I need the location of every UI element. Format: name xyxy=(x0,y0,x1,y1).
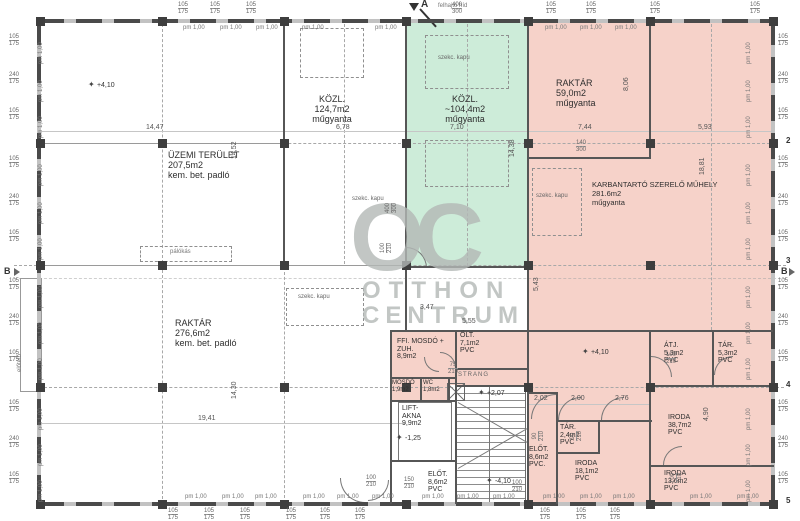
elevation-label: ✦ +4,10 xyxy=(88,80,115,89)
stair-divider xyxy=(489,386,490,504)
pm-label: pm 1,00 xyxy=(580,494,602,500)
elevation-label: ✦ +4,10 xyxy=(582,347,609,356)
pm-label: pm 1,00 xyxy=(422,494,444,500)
column-marker xyxy=(280,383,289,392)
room-floor: PVC xyxy=(460,347,500,355)
window-dim-pair: 105175 xyxy=(9,472,19,485)
room-floor: PVC. xyxy=(529,461,557,469)
room-label-mosdo: MOSDÓ 1,9m2 xyxy=(392,380,419,393)
window-dim-pair: 105175 xyxy=(778,34,788,47)
window-dim-pair: 105175 xyxy=(286,508,296,521)
wall xyxy=(527,392,558,394)
pm-label: pm 1,00 xyxy=(38,358,44,380)
grid-line-v xyxy=(711,24,712,330)
gate-outline xyxy=(532,168,582,236)
pm-label: pm 1,00 xyxy=(222,494,244,500)
room-floor: műgyanta xyxy=(556,98,626,108)
dim-label: 14,47 xyxy=(146,124,164,131)
dim-label: 7,44 xyxy=(578,124,592,131)
room-area: 1,9m2 xyxy=(392,387,419,394)
section-marker-b-right: B xyxy=(781,266,788,276)
room-label-elot2: ELŐT. 8,6m2 PVC. xyxy=(529,446,557,469)
room-floor: műgyanta xyxy=(296,114,368,124)
szekc-kapu-label: szekc. kapu xyxy=(438,55,470,61)
wall xyxy=(649,385,774,387)
window-dim-pair: 240175 xyxy=(778,436,788,449)
dim-label: 5,93 xyxy=(698,124,712,131)
column-marker xyxy=(646,383,655,392)
szekc-kapu-label: szekc. kapu xyxy=(352,196,384,202)
door-dim-pair: 100210 xyxy=(512,480,522,493)
window-dim-pair: 105175 xyxy=(750,2,760,15)
dim-line xyxy=(40,423,406,424)
pm-label: pm 1,00 xyxy=(38,444,44,466)
strang-label: STRANG xyxy=(458,372,489,378)
pm-label: pm 1,00 xyxy=(337,494,359,500)
dim-label: 2,76 xyxy=(615,395,629,402)
window-dim-pair: 240175 xyxy=(9,194,19,207)
door-dim-pair: 100210 xyxy=(670,473,683,483)
pm-label: pm 1,00 xyxy=(746,322,752,344)
window-dim-pair: 105175 xyxy=(9,400,19,413)
window-dim-pair: 105175 xyxy=(204,508,214,521)
pm-label: pm 1,00 xyxy=(375,25,397,31)
pm-label: pm 1,00 xyxy=(38,80,44,102)
column-marker xyxy=(158,500,167,509)
room-floor: kem. bet. padló xyxy=(175,338,269,348)
window-dim-pair: 105175 xyxy=(240,508,250,521)
dim-label: 14,38 xyxy=(509,139,516,157)
pm-label: pm 1,00 xyxy=(746,164,752,186)
window-dim-pair: 105175 xyxy=(178,2,188,15)
window-dim-pair: 105175 xyxy=(778,156,788,169)
column-marker xyxy=(524,139,533,148)
wall xyxy=(598,420,600,454)
wall xyxy=(420,377,422,402)
window-dim-pair: 105175 xyxy=(540,508,550,521)
column-marker xyxy=(36,383,45,392)
room-area: 18,1m2 xyxy=(575,468,619,476)
column-marker xyxy=(646,139,655,148)
door-dim-pair: 90210 xyxy=(532,431,545,441)
column-marker xyxy=(158,261,167,270)
column-marker xyxy=(280,261,289,270)
room-label-olt: ÖLT. 7,1m2 PVC xyxy=(460,332,500,355)
room-floor: műgyanta xyxy=(592,198,742,207)
column-marker xyxy=(402,17,411,26)
column-marker xyxy=(769,383,778,392)
dim-label: 14,30 xyxy=(231,381,238,399)
room-floor: PVC xyxy=(575,475,619,483)
window-dim-pair: 105175 xyxy=(320,508,330,521)
column-marker xyxy=(36,261,45,270)
room-label-elot1: ELŐT. 8,6m2 PVC xyxy=(428,471,464,494)
column-marker xyxy=(646,17,655,26)
window-dim-pair: 105175 xyxy=(610,508,620,521)
pm-label: pm 1,00 xyxy=(38,480,44,502)
pm-label: pm 1,00 xyxy=(613,494,635,500)
wall xyxy=(528,157,651,159)
room-name: ELŐT. xyxy=(428,471,464,479)
dim-label: 8,06 xyxy=(623,77,630,91)
column-marker xyxy=(158,383,167,392)
room-label-wc: WC 1,8m2 xyxy=(423,380,447,393)
pm-label: pm 1,00 xyxy=(302,25,324,31)
pm-label: pm 1,00 xyxy=(746,444,752,466)
wall xyxy=(455,385,529,387)
room-name: RAKTÁR xyxy=(556,78,626,88)
pm-label: pm 1,00 xyxy=(38,408,44,430)
window-dim-pair: 105175 xyxy=(9,278,19,291)
room-label-raktar59: RAKTÁR 59,0m2 műgyanta xyxy=(556,78,626,108)
room-label-ffi: FFI. MOSDÓ + ZUH. 8,9m2 xyxy=(397,338,447,361)
door-dim-pair: 75210 xyxy=(448,362,458,375)
section-arrow-a xyxy=(409,3,419,11)
pm-label: pm 1,00 xyxy=(256,25,278,31)
window-dim-pair: 105175 xyxy=(650,2,660,15)
elevation-label: ✦ +2,07 xyxy=(478,388,505,397)
room-area: 9,9m2 xyxy=(402,420,432,428)
dim-label: 4,90 xyxy=(703,407,710,421)
gate-outline xyxy=(300,28,364,78)
pm-label: pm 1,00 xyxy=(545,25,567,31)
door-dim-pair: 90210 xyxy=(570,431,583,441)
window-dim-pair: 240175 xyxy=(9,436,19,449)
pm-label: pm 1,00 xyxy=(493,494,515,500)
wall xyxy=(556,452,600,454)
room-label-lift: LIFT- AKNA 9,9m2 xyxy=(402,405,432,428)
pm-label: pm 1,00 xyxy=(38,286,44,308)
room-area: 8,9m2 xyxy=(397,353,447,361)
room-name: KÖZL. xyxy=(420,94,510,104)
column-marker xyxy=(769,139,778,148)
room-name: KARBANTARTÓ SZERELŐ MŰHELY xyxy=(592,180,742,189)
room-floor: PVC xyxy=(664,485,708,493)
pm-label: pm 1,00 xyxy=(38,202,44,224)
room-floor: kem. bet. padló xyxy=(168,170,262,180)
wall xyxy=(455,368,529,370)
pm-label: pm 1,00 xyxy=(38,42,44,64)
pm-label: pm 1,00 xyxy=(38,116,44,138)
pm-label: pm 1,00 xyxy=(38,322,44,344)
door-dim-pair: 100210 xyxy=(666,352,676,365)
grid-row-2: 2 xyxy=(786,136,790,145)
dim-label: 14,52 xyxy=(231,141,238,159)
pm-label: pm 1,00 xyxy=(746,116,752,138)
window-dim-pair: 105175 xyxy=(210,2,220,15)
dim-label: 7,10 xyxy=(450,124,464,131)
pm-label: pm 1,00 xyxy=(457,494,479,500)
window-dim-pair: 240175 xyxy=(9,72,19,85)
wall xyxy=(649,465,774,467)
window-dim-pair: 240175 xyxy=(778,314,788,327)
gate-outline xyxy=(425,140,509,187)
grid-row-3: 3 xyxy=(786,256,790,265)
section-marker-b-left: B xyxy=(4,266,11,276)
pm-label: pm 1,00 xyxy=(303,494,325,500)
room-area: 207,5m2 xyxy=(168,160,262,170)
window-dim-pair: 105175 xyxy=(778,108,788,121)
section-arrow-b-left xyxy=(14,268,20,276)
column-marker xyxy=(402,500,411,509)
window-dim-pair: 105175 xyxy=(778,472,788,485)
column-marker xyxy=(769,261,778,270)
grid-row-4: 4 xyxy=(786,380,790,389)
room-area: 124,7m2 xyxy=(296,104,368,114)
column-marker xyxy=(524,500,533,509)
dim-label: 19,41 xyxy=(198,415,216,422)
pm-label: pm 1,00 xyxy=(183,25,205,31)
room-area: 7,1m2 xyxy=(460,340,500,348)
room-name: ÁTJ. xyxy=(664,342,698,350)
wall xyxy=(448,377,450,402)
section-marker-a: A xyxy=(421,0,428,10)
column-marker xyxy=(280,139,289,148)
column-marker xyxy=(524,261,533,270)
pm-label: pm 1,00 xyxy=(746,286,752,308)
column-marker xyxy=(769,500,778,509)
room-label-kozl1: KÖZL. 124,7m2 műgyanta xyxy=(296,94,368,124)
pm-label: pm 1,00 xyxy=(746,80,752,102)
dim-label: 2,02 xyxy=(534,395,548,402)
pm-label: pm 1,00 xyxy=(255,494,277,500)
room-label-kozl2: KÖZL. ~104,4m2 műgyanta xyxy=(420,94,510,124)
wall xyxy=(390,330,773,332)
door-dim-pair: 150210 xyxy=(404,477,414,490)
watermark-text-2: CENTRUM xyxy=(362,302,524,330)
room-name: ÜZEMI TERÜLET xyxy=(168,150,262,160)
wall xyxy=(712,331,714,387)
room-area: 59,0m2 xyxy=(556,88,626,98)
room-name: IRODA xyxy=(575,460,619,468)
wall xyxy=(390,400,457,402)
door-dim-pair: 100210 xyxy=(380,243,393,253)
pm-label: pm 1,00 xyxy=(543,494,565,500)
pm-label: pm 1,00 xyxy=(746,480,752,502)
wall xyxy=(390,460,457,462)
szekc-kapu-label: szekc. kapu xyxy=(298,294,330,300)
szekc-kapu-label: szekc. kapu xyxy=(536,193,568,199)
window-dim-pair: 105175 xyxy=(9,108,19,121)
pm-label: pm 1,00 xyxy=(220,25,242,31)
window-dim-pair: 240175 xyxy=(778,194,788,207)
column-marker xyxy=(646,261,655,270)
room-name: KÖZL. xyxy=(296,94,368,104)
room-label-uzemi: ÜZEMI TERÜLET 207,5m2 kem. bet. padló xyxy=(168,150,262,180)
window-dim-pair: 105175 xyxy=(246,2,256,15)
dim-label: 5,43 xyxy=(533,277,540,291)
column-marker xyxy=(158,17,167,26)
wall xyxy=(390,331,392,504)
window-dim-pair: 105175 xyxy=(778,350,788,363)
window-dim-pair: 105175 xyxy=(9,156,19,169)
room-label-muhely: KARBANTARTÓ SZERELŐ MŰHELY 281.6m2 műgya… xyxy=(592,180,742,207)
window-dim-pair: 105175 xyxy=(355,508,365,521)
door-dim-pair: 400300 xyxy=(385,203,398,213)
window-dim-pair: 400300 xyxy=(452,2,462,15)
room-area: 38,7m2 xyxy=(668,422,716,430)
window-dim-pair: 240175 xyxy=(9,314,19,327)
column-marker xyxy=(524,17,533,26)
pm-label: pm 1,00 xyxy=(38,238,44,260)
pm-label: pm 1,00 xyxy=(746,358,752,380)
dim-label: 18,81 xyxy=(699,157,706,175)
room-area: ~104,4m2 xyxy=(420,104,510,114)
pm-label: pm 1,00 xyxy=(746,42,752,64)
room-name: LIFT- AKNA xyxy=(402,405,432,420)
window-dim-pair: 105175 xyxy=(168,508,178,521)
column-marker xyxy=(646,500,655,509)
gate-outline xyxy=(425,35,509,89)
pm-label: pm 1,00 xyxy=(580,25,602,31)
floor-plan: OC OTTHON CENTRUM ÜZEMI TERÜLET 207,5m2 … xyxy=(0,0,800,521)
window-dim-pair: 105175 xyxy=(586,2,596,15)
room-name: MOSDÓ xyxy=(392,380,419,387)
room-name: RAKTÁR xyxy=(175,318,269,328)
room-floor: PVC xyxy=(428,486,464,494)
room-area: 8,6m2 xyxy=(529,454,557,462)
window-dim-pair: 240175 xyxy=(778,72,788,85)
pm-label: pm 1,00 xyxy=(38,164,44,186)
window-dim-pair: 105175 xyxy=(9,230,19,243)
elevation-label: ✦ -4,10 xyxy=(486,476,511,485)
room-name: ELŐT. xyxy=(529,446,557,454)
elevation-label: ✦ -1,25 xyxy=(396,433,421,442)
section-arrow-b-right xyxy=(789,268,795,276)
window-dim-pair: 105175 xyxy=(9,350,19,363)
column-marker xyxy=(36,139,45,148)
room-floor: PVC xyxy=(668,429,716,437)
pm-label: pm 1,00 xyxy=(746,202,752,224)
column-marker xyxy=(402,139,411,148)
room-floor: műgyanta xyxy=(420,114,510,124)
wall xyxy=(390,377,457,379)
pm-label: pm 1,00 xyxy=(690,494,712,500)
window-dim-pair: 105175 xyxy=(778,400,788,413)
room-area: 8,6m2 xyxy=(428,479,464,487)
wall xyxy=(556,420,652,422)
dim-label: 6,78 xyxy=(336,124,350,131)
room-name: FFI. MOSDÓ + ZUH. xyxy=(397,338,447,353)
dim-label: 3,47 xyxy=(420,304,434,311)
window-dim-pair: 105175 xyxy=(778,230,788,243)
column-marker xyxy=(36,17,45,26)
room-label-iroda181: IRODA 18,1m2 PVC xyxy=(575,460,619,483)
dim-label: 2,00 xyxy=(571,395,585,402)
wall xyxy=(649,331,651,504)
room-area: 1,8m2 xyxy=(423,387,447,394)
watermark-logo: OC xyxy=(350,192,474,284)
room-area: 281.6m2 xyxy=(592,189,742,198)
pm-label: pm 1,00 xyxy=(615,25,637,31)
window-dim-pair: 105175 xyxy=(546,2,556,15)
window-dim-pair: 105175 xyxy=(778,278,788,291)
column-marker xyxy=(524,383,533,392)
pm-label: pm 1,00 xyxy=(746,408,752,430)
watermark-text-1: OTTHON xyxy=(362,277,511,305)
window-dim-pair: 105175 xyxy=(9,34,19,47)
room-area: 5,3m2 xyxy=(718,350,752,358)
room-label-raktar276: RAKTÁR 276,6m2 kem. bet. padló xyxy=(175,318,269,348)
pm-label: pm 1,00 xyxy=(372,494,394,500)
column-marker xyxy=(158,139,167,148)
grid-row-5: 5 xyxy=(786,496,790,505)
dim-label: 5,55 xyxy=(462,318,476,325)
window-dim-pair: 105175 xyxy=(576,508,586,521)
room-name: ÖLT. xyxy=(460,332,500,340)
palokas-label: pálókás xyxy=(170,249,191,255)
room-area: 276,6m2 xyxy=(175,328,269,338)
pm-label: pm 1,00 xyxy=(185,494,207,500)
column-marker xyxy=(769,17,778,26)
door-dim-pair: 140300 xyxy=(576,140,586,153)
column-marker xyxy=(280,17,289,26)
pm-label: pm 1,00 xyxy=(746,238,752,260)
door-dim-pair: 100210 xyxy=(366,475,376,488)
